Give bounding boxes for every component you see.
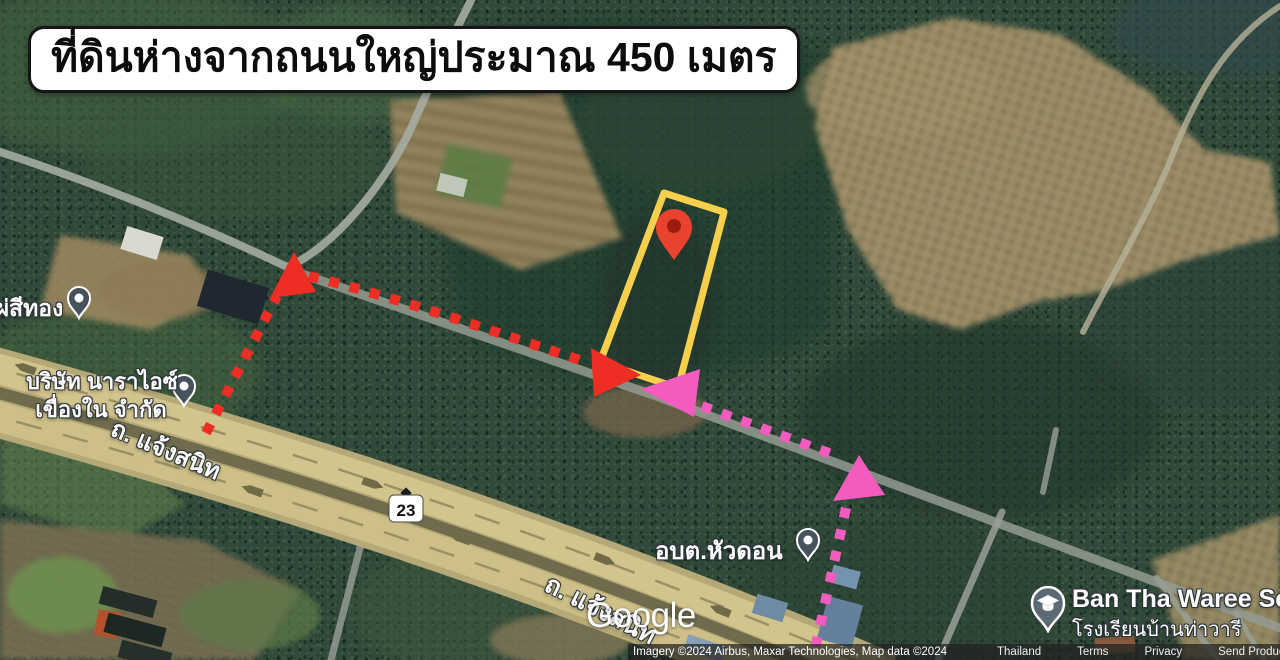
attribution-link-feedback[interactable]: Send Product Feedback <box>1218 646 1280 658</box>
company-name-line1: บริษัท นาราไอซ์ <box>26 368 176 396</box>
imagery-credit: Imagery ©2024 Airbus, Maxar Technologies… <box>633 646 947 658</box>
attribution-link-terms[interactable]: Terms <box>1077 646 1108 658</box>
poi-pin-phai-si-thong[interactable] <box>66 286 92 320</box>
poi-pin-school[interactable] <box>1028 585 1068 633</box>
google-watermark[interactable]: Google <box>586 596 696 636</box>
poi-label-phai-si-thong[interactable]: ไผ่สีทอง <box>0 291 63 327</box>
attribution-bar: Imagery ©2024 Airbus, Maxar Technologies… <box>628 644 1280 660</box>
attribution-link-privacy[interactable]: Privacy <box>1144 646 1182 658</box>
school-label-english[interactable]: Ban Tha Waree School <box>1072 585 1280 614</box>
title-banner: ที่ดินห่างจากถนนใหญ่ประมาณ 450 เมตร <box>28 26 800 93</box>
satellite-map[interactable]: 23 <box>0 0 1280 660</box>
poi-label-subdistrict-office[interactable]: อบต.หัวดอน <box>655 531 783 570</box>
attribution-link-thailand[interactable]: Thailand <box>997 646 1041 658</box>
satellite-terrain: 23 <box>0 0 1280 660</box>
poi-pin-subdistrict-office[interactable] <box>795 528 821 562</box>
poi-label-company[interactable]: บริษัท นาราไอซ์ เขื่องใน จำกัด <box>26 368 176 423</box>
school-label-thai: โรงเรียนบ้านท่าวารี <box>1072 613 1241 645</box>
banner-title: ที่ดินห่างจากถนนใหญ่ประมาณ 450 เมตร <box>51 34 777 80</box>
company-name-line2: เขื่องใน จำกัด <box>26 396 176 424</box>
highway-number: 23 <box>397 501 416 520</box>
